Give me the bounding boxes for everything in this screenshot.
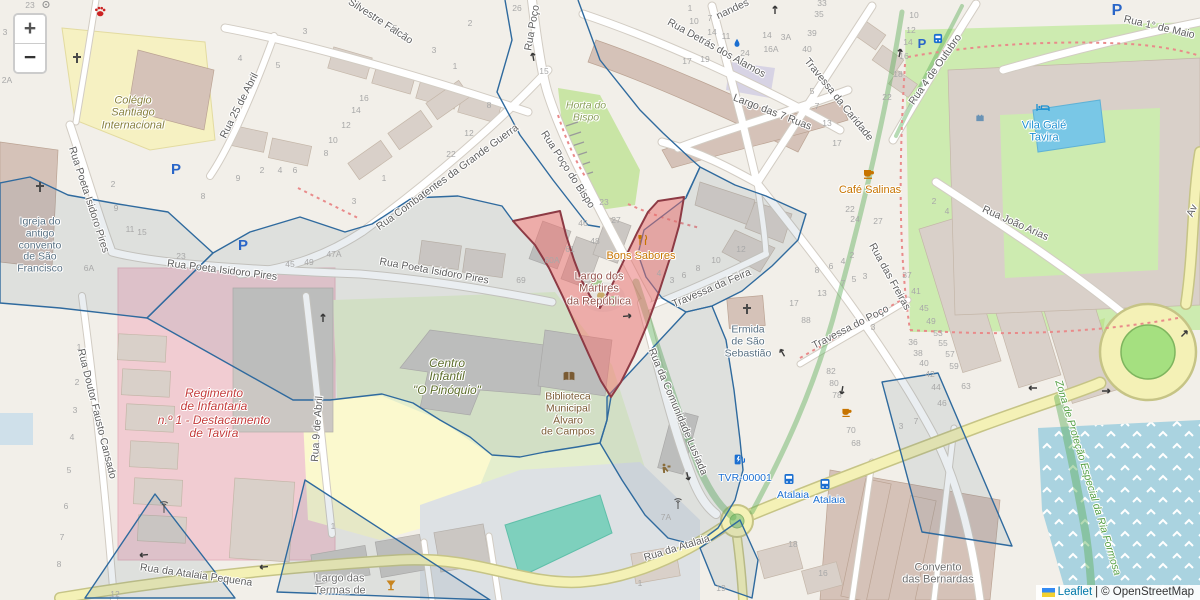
attribution-separator: | <box>1095 586 1098 598</box>
attribution-bar: Leaflet | © OpenStreetMap <box>1036 585 1200 600</box>
leaflet-link[interactable]: Leaflet <box>1058 586 1093 598</box>
zoom-in-button[interactable]: + <box>15 15 45 44</box>
osm-link[interactable]: © OpenStreetMap <box>1101 586 1194 598</box>
ukraine-flag-icon <box>1042 588 1055 597</box>
zoom-control: + − <box>13 13 47 74</box>
map-tiles <box>0 0 1200 600</box>
map-canvas[interactable]: Silvestre FalcãoRua Detrás dos Alamosnan… <box>0 0 1200 600</box>
zoom-out-button[interactable]: − <box>15 44 45 72</box>
